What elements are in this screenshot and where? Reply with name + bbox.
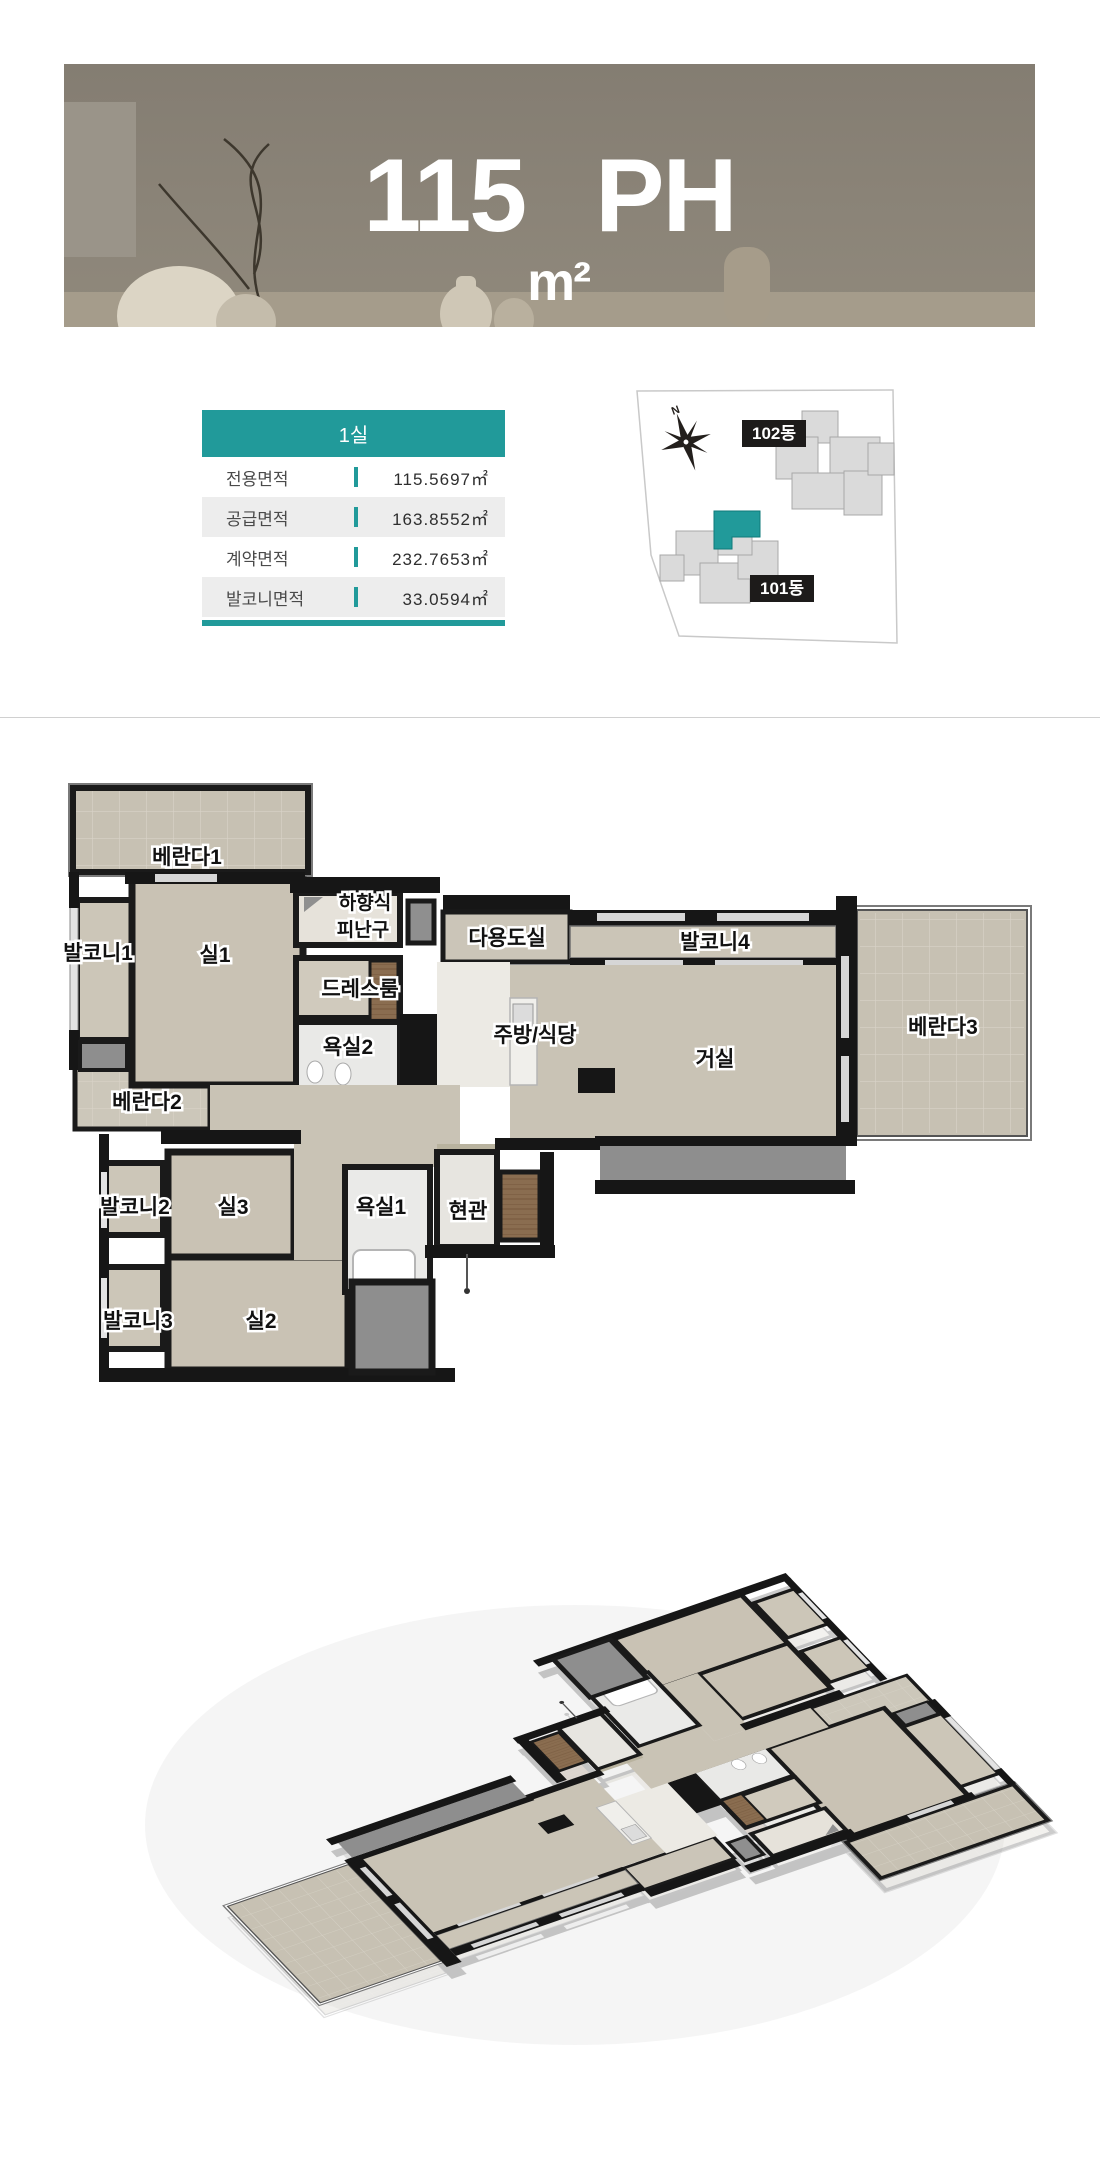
svg-text:102동: 102동 [752,424,796,443]
room-label-escape-hatch-2: 피난구 [337,919,389,941]
room1-window [155,874,217,882]
room-label-balcony3: 발코니3 [103,1310,173,1333]
room-label-room1: 실1 [200,944,231,967]
table-row: 발코니면적 33.0594㎡ [202,577,505,617]
west-wall-mid [69,1030,79,1070]
room-label-bath2: 욕실2 [323,1036,373,1059]
row-label: 전용면적 [226,465,338,490]
building-102-label: 102동 [742,420,806,447]
core-east-wall [540,1152,554,1252]
table-row: 공급면적 163.8552㎡ [202,497,505,537]
column [578,1068,615,1093]
toilet-icon [307,1061,323,1083]
building-101-label: 101동 [750,575,814,602]
room-label-veranda2: 베란다2 [112,1091,182,1114]
page-title: 115m²PH [64,64,1035,327]
entry-path-dot [464,1288,470,1294]
room-label-living: 거실 [696,1048,735,1071]
core-wall [400,1014,437,1088]
living-south-wall-c [595,1180,855,1194]
room-label-escape-hatch-1: 하향식 [339,892,391,914]
page: 115m²PH 1실 전용면적 115.5697㎡ 공급면적 163.8552㎡… [0,0,1100,2174]
area-info-table: 1실 전용면적 115.5697㎡ 공급면적 163.8552㎡ 계약면적 23… [202,410,505,626]
table-footer-bar [202,620,505,626]
living-south-wall-b [595,1136,853,1146]
room-label-veranda3: 베란다3 [908,1016,978,1039]
hero-banner: 115m²PH [64,64,1035,327]
table-row: 전용면적 115.5697㎡ [202,457,505,497]
veranda3-window [841,1056,849,1122]
entry-stair [500,1172,540,1240]
room-label-entrance: 현관 [449,1200,488,1223]
title-unit: m² [527,255,589,323]
balcony1-window [70,906,78,1034]
row-label: 계약면적 [226,545,338,570]
room-label-dressroom: 드레스룸 [321,978,398,1001]
room1-floor [132,880,303,1085]
row-label: 공급면적 [226,505,338,530]
balcony3-floor [105,1267,163,1349]
row-label: 발코니면적 [226,585,338,610]
utility-top-wall [443,895,570,912]
service-shaft-top [408,901,434,943]
room-label-utility: 다용도실 [468,927,545,950]
room-label-kitchen: 주방/식당 [493,1024,576,1047]
floor-plan-2d: 베란다1 발코니1 실1 하향식 피난구 드레스룸 욕실2 다용도실 발코니4 … [63,784,1031,1382]
core-south-wall [425,1245,555,1258]
title-suffix: PH [595,144,735,248]
room-label-room3: 실3 [218,1196,249,1219]
ldk-floor [510,965,836,1140]
row-value: 163.8552㎡ [358,505,505,530]
room-label-balcony4: 발코니4 [680,931,750,954]
west-wall-top [69,872,79,908]
table-row: 계약면적 232.7653㎡ [202,537,505,577]
title-area-number: 115 [363,144,525,248]
balcony1-floor [77,900,132,1040]
table-header: 1실 [202,410,505,457]
veranda3-window [841,956,849,1038]
room-label-balcony1: 발코니1 [63,942,133,965]
row-value: 33.0594㎡ [358,585,505,610]
section-divider [0,717,1100,718]
row-value: 115.5697㎡ [358,465,505,490]
room-label-room2: 실2 [246,1310,277,1333]
north-wall-2 [290,877,440,893]
svg-text:101동: 101동 [760,579,804,598]
floor-plan-section: 베란다1 발코니1 실1 하향식 피난구 드레스룸 욕실2 다용도실 발코니4 … [0,760,1100,2174]
plan-geometry [69,784,1031,1382]
bedroom-hall-floor [294,1130,345,1260]
south-gray-band [600,1146,846,1180]
site-map: N [630,385,910,660]
toilet-icon [335,1063,351,1085]
wing-top-wall [161,1130,301,1144]
shaft-gray [352,1282,432,1372]
balcony4-window [717,913,809,921]
room-label-veranda1: 베란다1 [152,846,222,869]
room-label-balcony2: 발코니2 [100,1196,170,1219]
row-value: 232.7653㎡ [358,545,505,570]
room-label-bath1: 욕실1 [356,1196,407,1219]
gray-block-left [80,1042,127,1070]
balcony4-window [597,913,685,921]
